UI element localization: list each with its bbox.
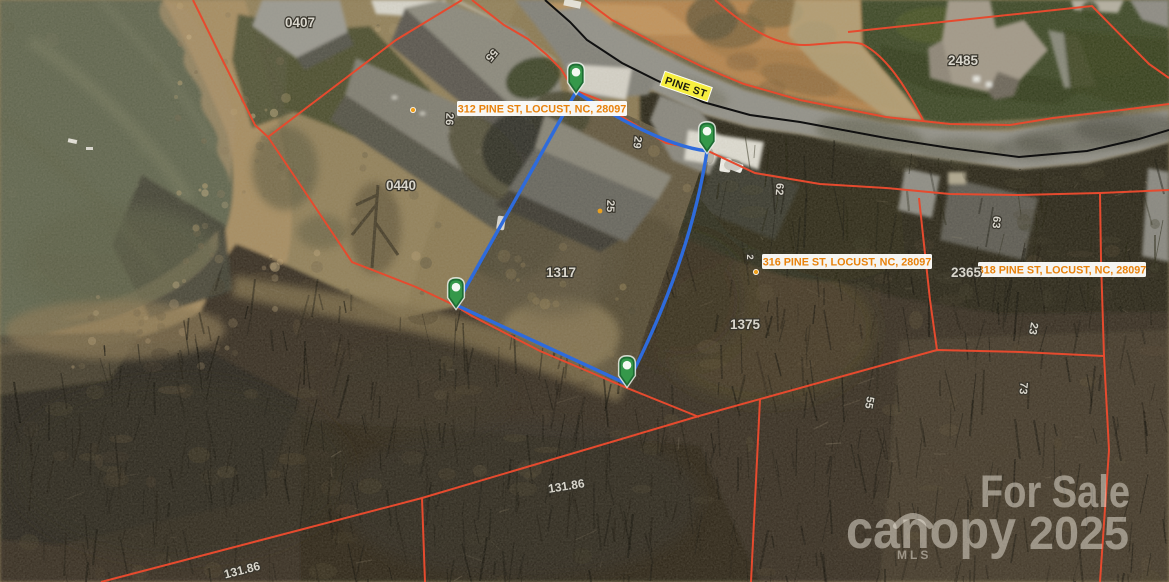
svg-text:29: 29 xyxy=(630,136,643,150)
svg-text:1317: 1317 xyxy=(546,265,576,280)
svg-text:73: 73 xyxy=(1016,382,1029,395)
svg-text:23: 23 xyxy=(1026,321,1040,335)
svg-text:25: 25 xyxy=(604,200,616,213)
svg-text:1375: 1375 xyxy=(730,317,761,332)
svg-text:MLS: MLS xyxy=(897,548,931,562)
svg-text:318 PINE ST, LOCUST, NC, 28097: 318 PINE ST, LOCUST, NC, 28097 xyxy=(978,265,1147,277)
svg-text:0440: 0440 xyxy=(386,178,416,193)
svg-text:2025: 2025 xyxy=(1029,507,1129,559)
svg-text:2365: 2365 xyxy=(951,265,982,280)
svg-text:63: 63 xyxy=(989,216,1002,229)
svg-text:26: 26 xyxy=(443,113,456,126)
svg-text:0407: 0407 xyxy=(285,15,315,30)
svg-text:55: 55 xyxy=(862,395,876,409)
svg-text:316 PINE ST, LOCUST, NC, 28097: 316 PINE ST, LOCUST, NC, 28097 xyxy=(763,257,932,269)
svg-text:312 PINE ST, LOCUST, NC, 28097: 312 PINE ST, LOCUST, NC, 28097 xyxy=(458,104,627,116)
svg-text:2: 2 xyxy=(744,254,755,259)
svg-text:2485: 2485 xyxy=(948,53,979,68)
svg-text:62: 62 xyxy=(773,183,786,196)
